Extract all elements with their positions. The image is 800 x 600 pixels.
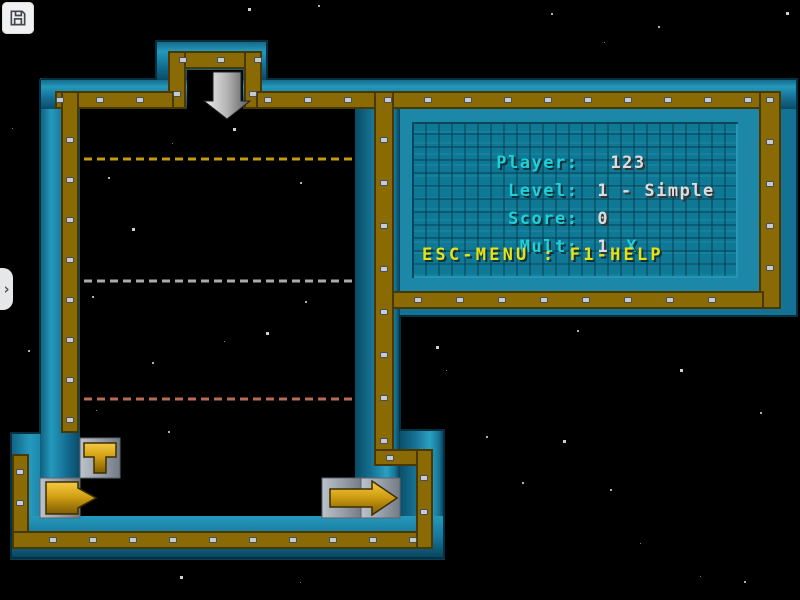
hud-panel: Player:123 Level:1 - Simple Score:0 Mult…: [412, 122, 738, 278]
game-board-graphics: [0, 0, 800, 600]
drawer-handle[interactable]: ›: [0, 268, 13, 310]
game-screen: Player:123 Level:1 - Simple Score:0 Mult…: [0, 0, 800, 600]
save-icon: [8, 8, 28, 28]
help-text: ESC-MENU : F1-HELP: [422, 245, 664, 265]
save-button[interactable]: [2, 2, 34, 34]
chevron-right-icon: ›: [2, 280, 11, 298]
play-field[interactable]: [80, 110, 355, 518]
